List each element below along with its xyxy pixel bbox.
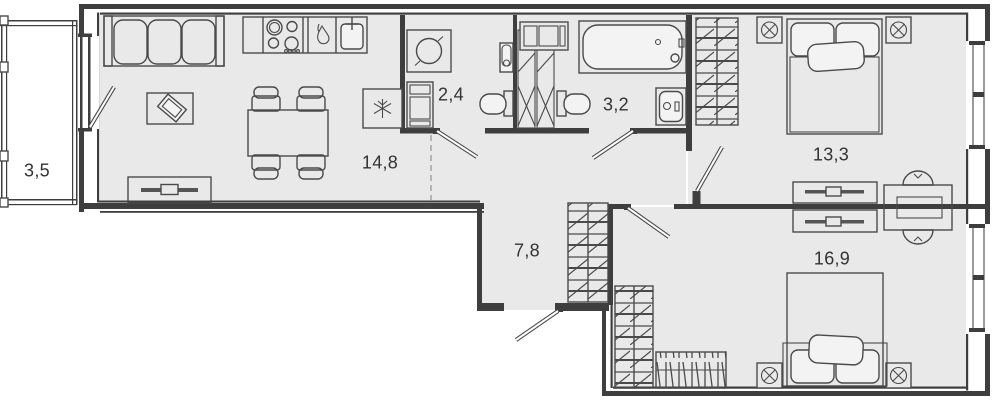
- bathroom-basin-icon: [656, 88, 686, 125]
- room-label-bedroom-2: 16,9: [814, 249, 850, 270]
- room-label-hallway: 7,8: [514, 241, 540, 262]
- entrance-door: [516, 311, 558, 340]
- fridge-icon: [363, 89, 402, 128]
- room-label-balcony: 3,5: [24, 161, 50, 182]
- bedroom-2-window: [966, 224, 990, 334]
- nightstand-lamp: [886, 17, 911, 43]
- bathroom-cabinet: [520, 22, 568, 50]
- wc-sink-icon: [500, 43, 513, 72]
- room-label-bathroom: 3,2: [603, 95, 629, 116]
- hallway-wardrobe: [568, 203, 608, 302]
- room-label-kitchen-living: 14,8: [362, 153, 398, 174]
- bedroom-1-window: [966, 41, 990, 149]
- washing-machine-icon: [407, 30, 451, 72]
- room-label-laundry-wc: 2,4: [438, 85, 464, 106]
- nightstand-lamp: [757, 17, 782, 43]
- floor-plan-drawing: [0, 0, 993, 402]
- room-label-bedroom-1: 13,3: [813, 145, 849, 166]
- bathroom-toilet-icon: [557, 91, 590, 116]
- nightstand-lamp: [757, 363, 782, 388]
- bedroom-2-wardrobe: [615, 286, 653, 388]
- bedroom-1-wardrobe: [696, 18, 738, 125]
- bathtub-icon: [579, 21, 686, 73]
- nightstand-lamp: [886, 363, 911, 388]
- wc-toilet-icon: [480, 91, 513, 116]
- book-shelf: [656, 352, 726, 388]
- floor-plan: 3,5 14,8 2,4 3,2 7,8 13,3 16,9: [0, 0, 993, 402]
